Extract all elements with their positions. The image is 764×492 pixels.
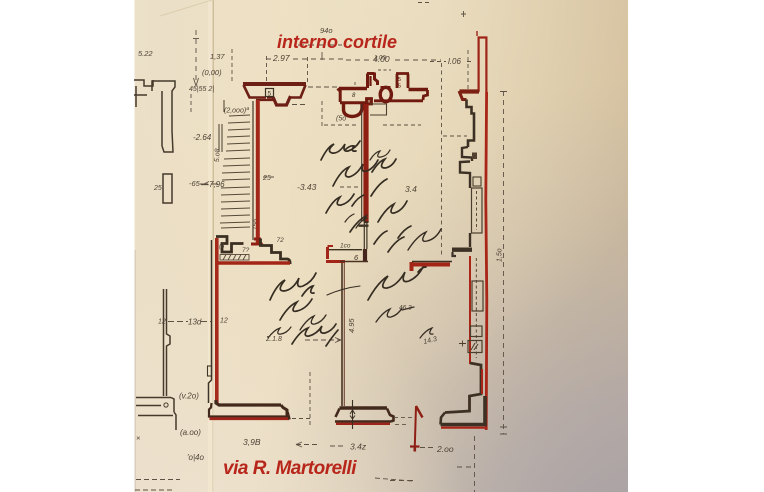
svg-text:3.4z: 3.4z: [350, 442, 367, 452]
svg-text:interno cortile: interno cortile: [277, 32, 397, 52]
svg-text:via R. Martorelli: via R. Martorelli: [223, 458, 357, 479]
svg-text:(2,ooo)ª: (2,ooo)ª: [224, 108, 249, 115]
svg-text:(6: (6: [219, 244, 225, 250]
svg-text:-65: -65: [189, 179, 201, 188]
svg-text:5: 5: [398, 84, 401, 90]
svg-text:Σ.1.8: Σ.1.8: [265, 336, 282, 343]
svg-text:1,00: 1,00: [374, 56, 386, 62]
svg-text:25: 25: [153, 185, 162, 192]
svg-text:3.4: 3.4: [405, 184, 417, 194]
svg-text:5: 5: [268, 91, 272, 98]
svg-text:25: 25: [262, 175, 271, 182]
svg-text:46.3: 46.3: [399, 305, 412, 312]
svg-text:(v.2o): (v.2o): [179, 392, 199, 401]
svg-text:—7,96: —7,96: [200, 180, 225, 189]
svg-text:-2.64: -2.64: [193, 133, 212, 142]
svg-text:7?: 7?: [242, 247, 250, 254]
svg-text:1co: 1co: [340, 243, 351, 250]
svg-text:-3.43: -3.43: [297, 182, 317, 192]
svg-text:1,5o: 1,5o: [497, 248, 504, 262]
svg-text:(a.oo): (a.oo): [180, 428, 201, 437]
svg-text:(5o: (5o: [336, 116, 346, 123]
svg-text:(0,00): (0,00): [202, 68, 222, 77]
svg-text:5: 5: [398, 77, 401, 83]
svg-text:2.97: 2.97: [272, 53, 290, 63]
svg-text:12: 12: [220, 318, 228, 325]
svg-text:5.22: 5.22: [138, 49, 153, 58]
svg-text:13d: 13d: [188, 318, 202, 327]
svg-text:l.06: l.06: [448, 57, 461, 66]
svg-text:'o|4o: 'o|4o: [187, 453, 205, 462]
svg-text:72: 72: [277, 237, 285, 244]
svg-text:4.95: 4.95: [347, 318, 356, 333]
svg-text:12: 12: [158, 319, 166, 326]
svg-text:2.oo: 2.oo: [436, 444, 454, 454]
svg-text:5.o8: 5.o8: [214, 148, 222, 162]
svg-text:45|55 2|: 45|55 2|: [189, 86, 214, 93]
svg-text:1,37: 1,37: [210, 52, 225, 61]
svg-text:×: ×: [136, 434, 140, 443]
svg-text:3,9B: 3,9B: [243, 437, 261, 447]
